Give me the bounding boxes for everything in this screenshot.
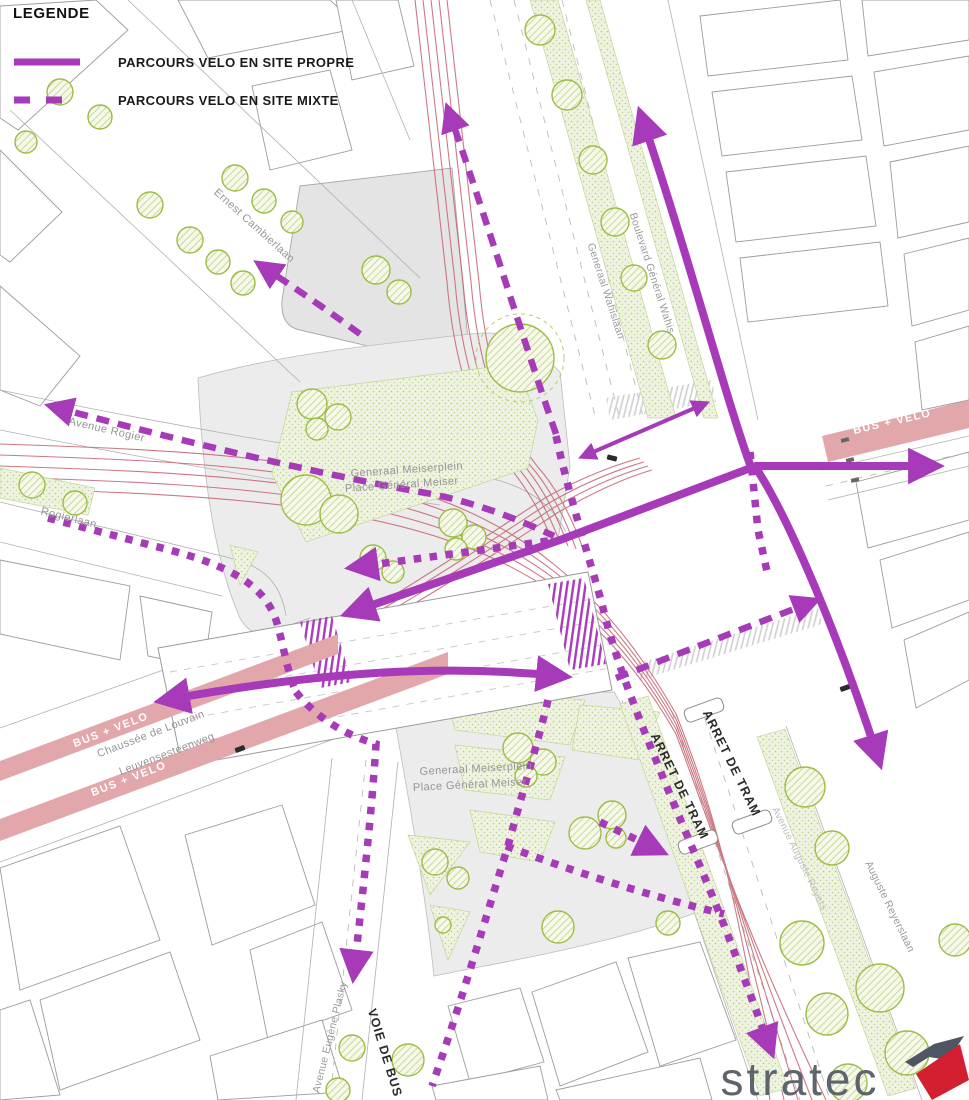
plan-meiser-map: BUS + VELO BUS + VELO BUS + VELO — [0, 0, 969, 1100]
stratec-logo-text: stratec — [720, 1053, 879, 1100]
legend-label-site-propre: PARCOURS VELO EN SITE PROPRE — [118, 55, 354, 70]
map-canvas: BUS + VELO BUS + VELO BUS + VELO — [0, 0, 969, 1100]
legend-label-site-mixte: PARCOURS VELO EN SITE MIXTE — [118, 93, 339, 108]
legend-title: LEGENDE — [13, 5, 90, 22]
